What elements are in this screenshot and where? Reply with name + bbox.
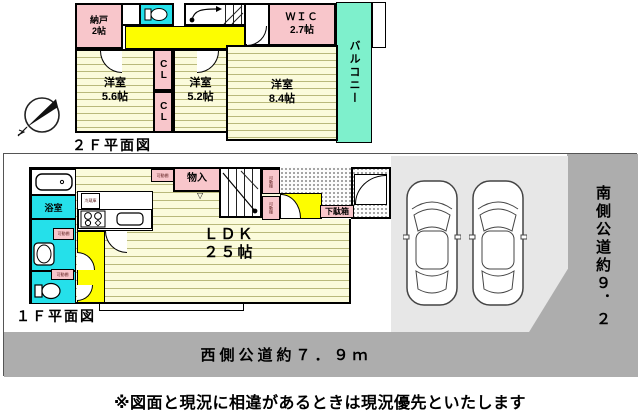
- shelf-box: 可動棚: [262, 169, 280, 194]
- room-wic-name: ＷＩＣ: [286, 12, 319, 25]
- room-bed3-name: 洋室: [271, 79, 293, 93]
- door-mark: ▽: [197, 192, 203, 200]
- room-bath: 浴室: [31, 195, 76, 219]
- room-ldk-label: ＬＤＫ ２５帖: [186, 226, 272, 262]
- entrance-step: [99, 303, 244, 311]
- stairs-arrow-icon: [186, 5, 244, 24]
- room-bath-label: 浴室: [44, 201, 62, 214]
- fridge-label: 冷蔵庫: [85, 199, 97, 203]
- floorplan-page: 納戸 2帖 ＷＩＣ 2.7帖 ▽ ▽ バルコニー 洋室 5.6帖: [0, 0, 640, 417]
- room-monoire: 物入: [173, 167, 221, 192]
- stairs-2f: [184, 3, 246, 26]
- site-plan: 南側公道約９．２ｍ 西側公道約７．９ｍ: [3, 153, 637, 376]
- bathtub-area: [31, 169, 76, 195]
- fridge-box: 冷蔵庫: [81, 193, 100, 209]
- balcony-label: バルコニー: [346, 40, 362, 105]
- bathtub-icon: [35, 173, 73, 191]
- kitchen-counter: [78, 209, 152, 229]
- shoe-cabinet: 下駄箱: [320, 205, 354, 218]
- balcony: バルコニー: [336, 2, 372, 143]
- room-bed1-size: 5.6帖: [102, 91, 128, 105]
- toilet-icon: [34, 281, 62, 301]
- washstand-2f: [121, 3, 141, 26]
- stove-sink-icon: [79, 210, 149, 228]
- closet-cl-top: CL: [153, 49, 173, 91]
- car-icon: [403, 179, 461, 307]
- toilet-icon: [144, 7, 170, 22]
- shelf-label: 可動棚: [269, 202, 273, 214]
- room-monoire-label: 物入: [187, 173, 207, 186]
- balcony-ledge: [372, 2, 386, 48]
- floor2-plan-label: ２Ｆ平面図: [72, 135, 152, 155]
- room-nando-size: 2帖: [92, 26, 106, 37]
- shelf-label: 可動棚: [57, 273, 69, 277]
- closet-cl-bottom-label: CL: [157, 101, 170, 123]
- room-bed3: 洋室 8.4帖: [226, 45, 338, 141]
- room-nando-name: 納戸: [90, 15, 108, 26]
- stairs-1f: [219, 167, 262, 218]
- shelf-box: 可動棚: [53, 228, 74, 240]
- shelf-box: 可動棚: [262, 196, 280, 220]
- shelf-label: 可動棚: [269, 176, 273, 188]
- room-bed2-name: 洋室: [190, 77, 212, 91]
- disclaimer-text: ※図面と現況に相違があるときは現況優先といたします: [0, 389, 640, 413]
- room-ldk-name: ＬＤＫ: [186, 226, 272, 244]
- room-bed2-size: 5.2帖: [187, 91, 213, 105]
- room-wic: ＷＩＣ 2.7帖: [268, 3, 336, 46]
- car-icon: [469, 179, 527, 307]
- room-wic-size: 2.7帖: [290, 25, 314, 38]
- toilet-room-2f: [139, 3, 174, 26]
- shelf-box: 可動棚: [151, 169, 174, 182]
- closet-cl-top-label: CL: [157, 59, 170, 81]
- floor1-plan-label: １Ｆ平面図: [16, 306, 96, 326]
- shoe-cabinet-label: 下駄箱: [325, 206, 349, 217]
- shelf-label: 可動棚: [58, 232, 70, 236]
- shelf-label: 可動棚: [157, 174, 169, 178]
- room-bed3-size: 8.4帖: [269, 93, 295, 107]
- road-west: 西側公道約７．９ｍ: [4, 332, 638, 377]
- road-south-label: 南側公道約９．２ｍ: [592, 185, 613, 347]
- stairs-arrow-icon: [221, 169, 260, 216]
- road-west-label: 西側公道約７．９ｍ: [4, 344, 568, 365]
- room-bed1-name: 洋室: [104, 77, 126, 91]
- north-arrow-icon: [15, 91, 67, 143]
- washing-machine-icon: [33, 242, 55, 266]
- shelf-box: 可動棚: [51, 269, 74, 280]
- room-nando: 納戸 2帖: [75, 3, 123, 49]
- room-ldk-size: ２５帖: [186, 244, 272, 262]
- closet-cl-bottom: CL: [153, 91, 173, 133]
